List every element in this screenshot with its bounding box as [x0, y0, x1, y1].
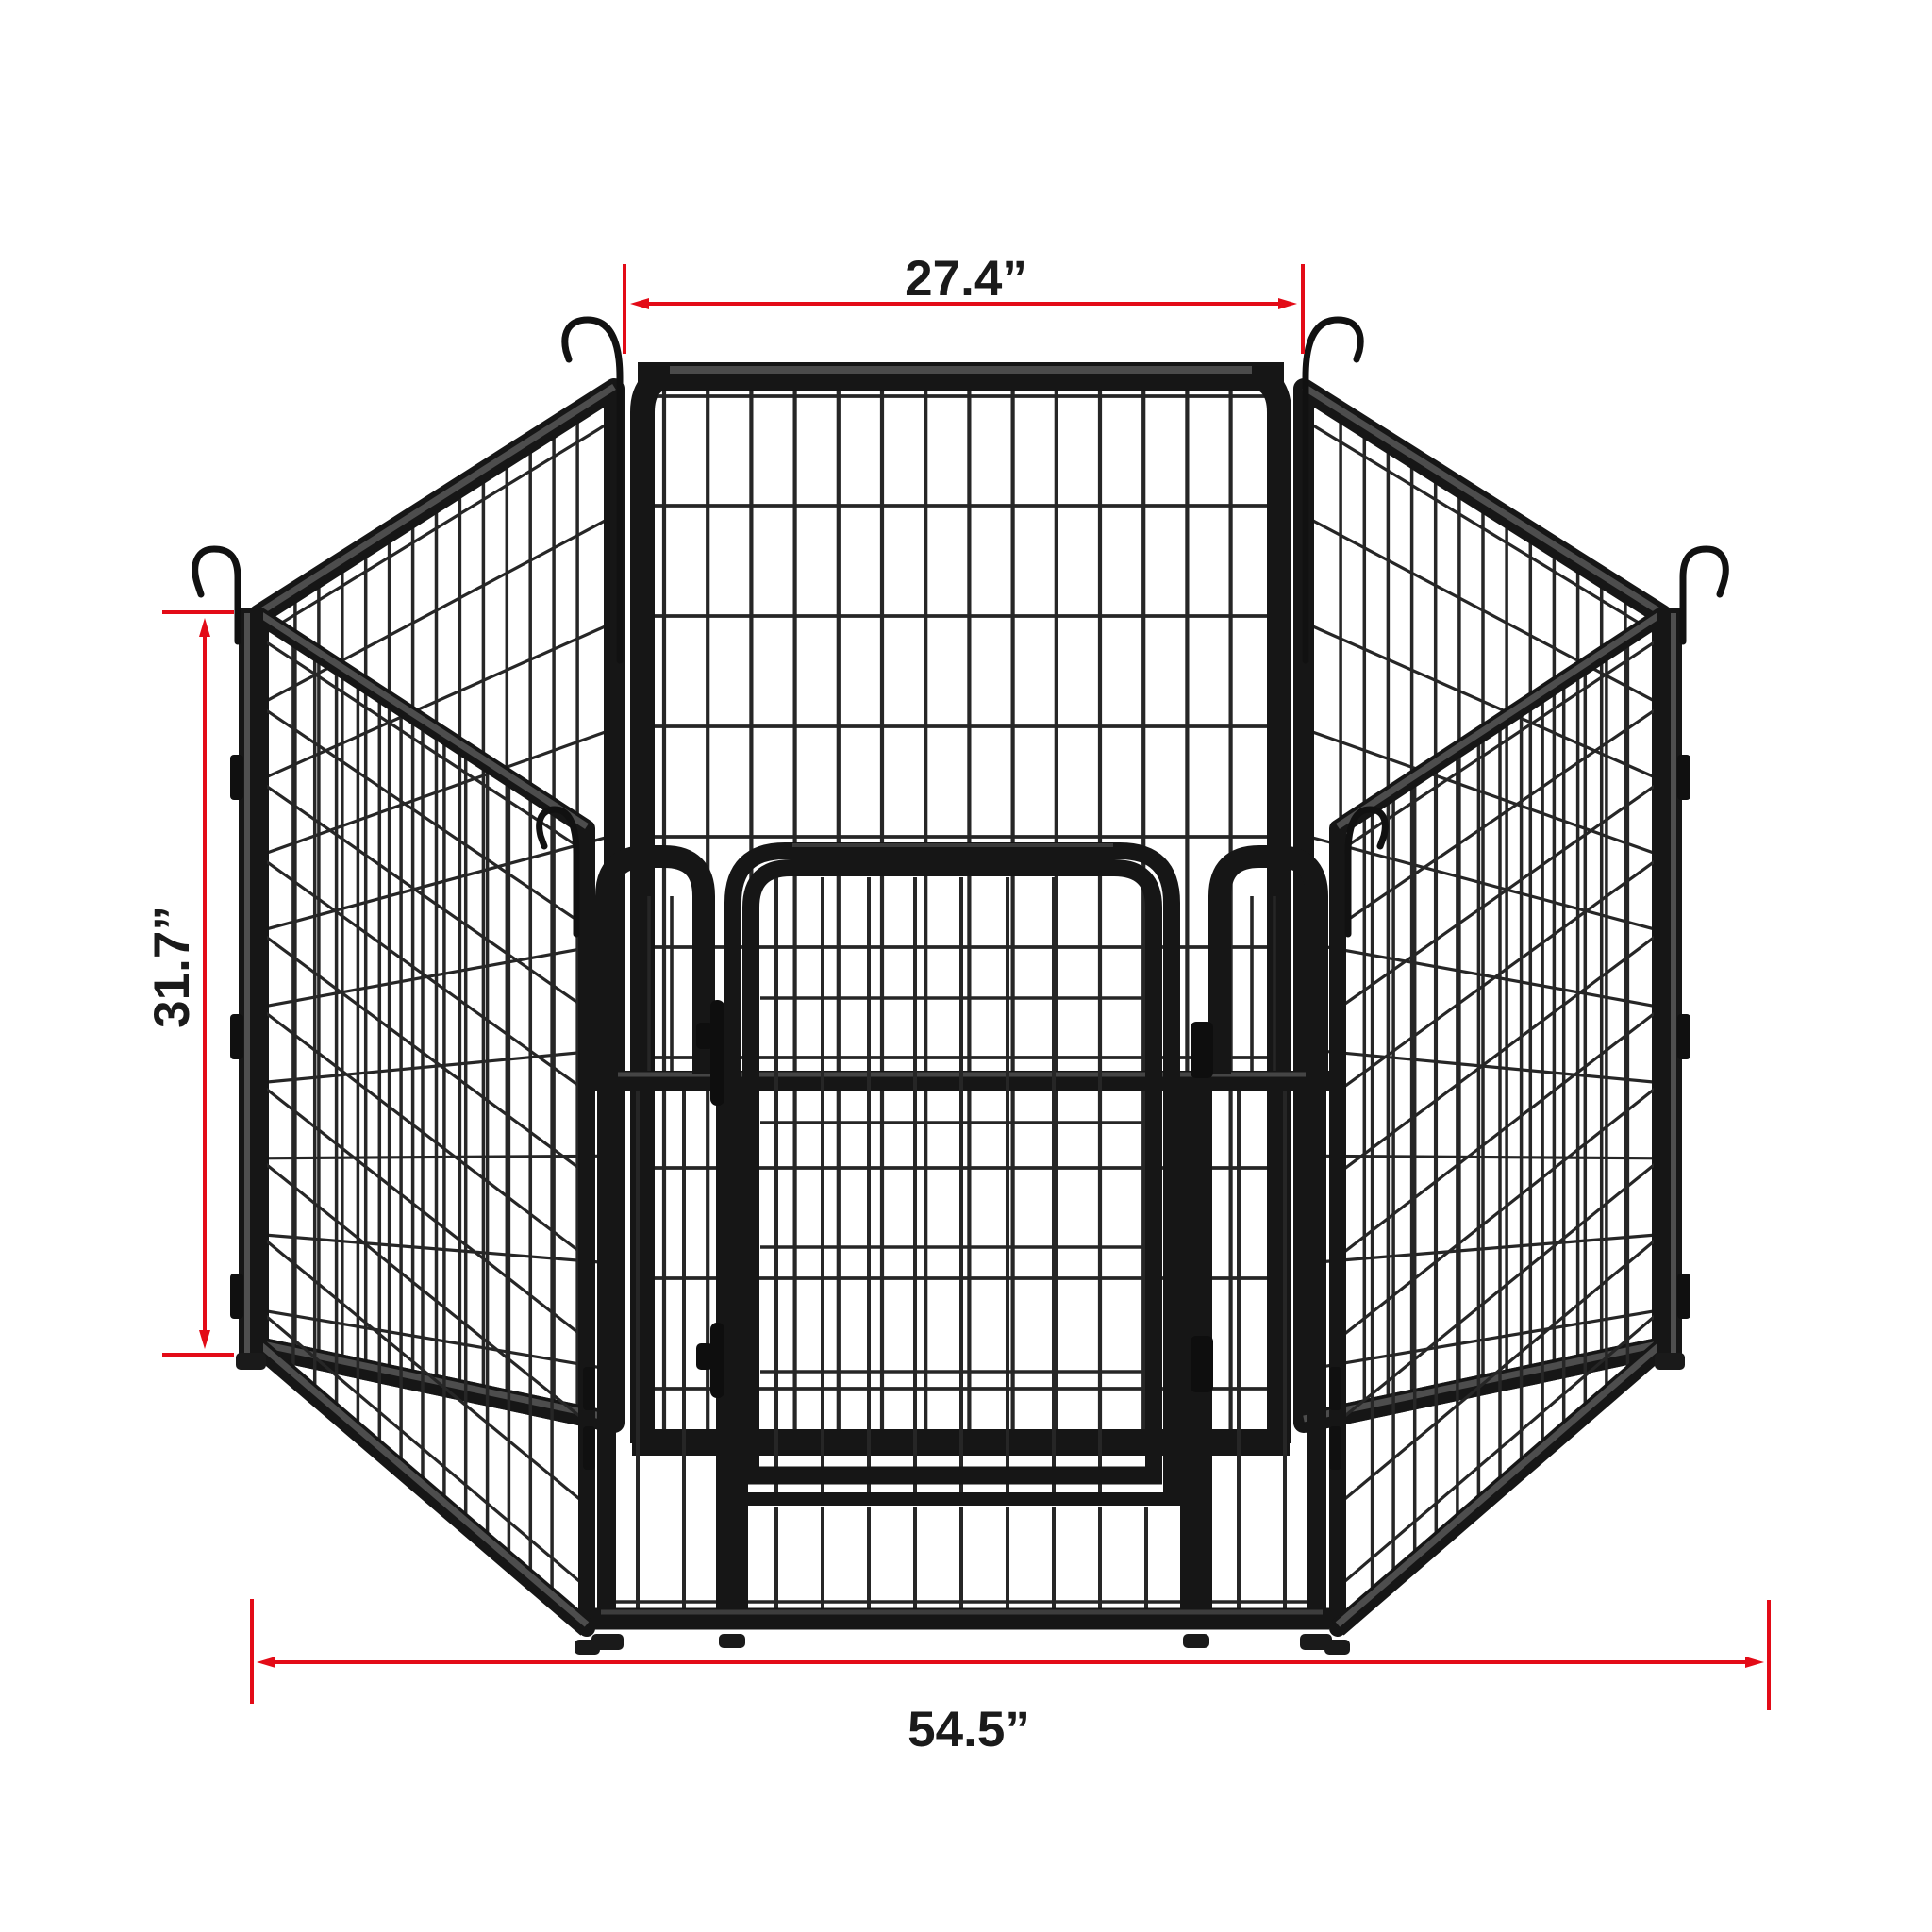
svg-text:31.7”: 31.7”: [144, 906, 200, 1028]
svg-text:54.5”: 54.5”: [908, 1702, 1030, 1757]
svg-text:27.4”: 27.4”: [905, 251, 1027, 307]
